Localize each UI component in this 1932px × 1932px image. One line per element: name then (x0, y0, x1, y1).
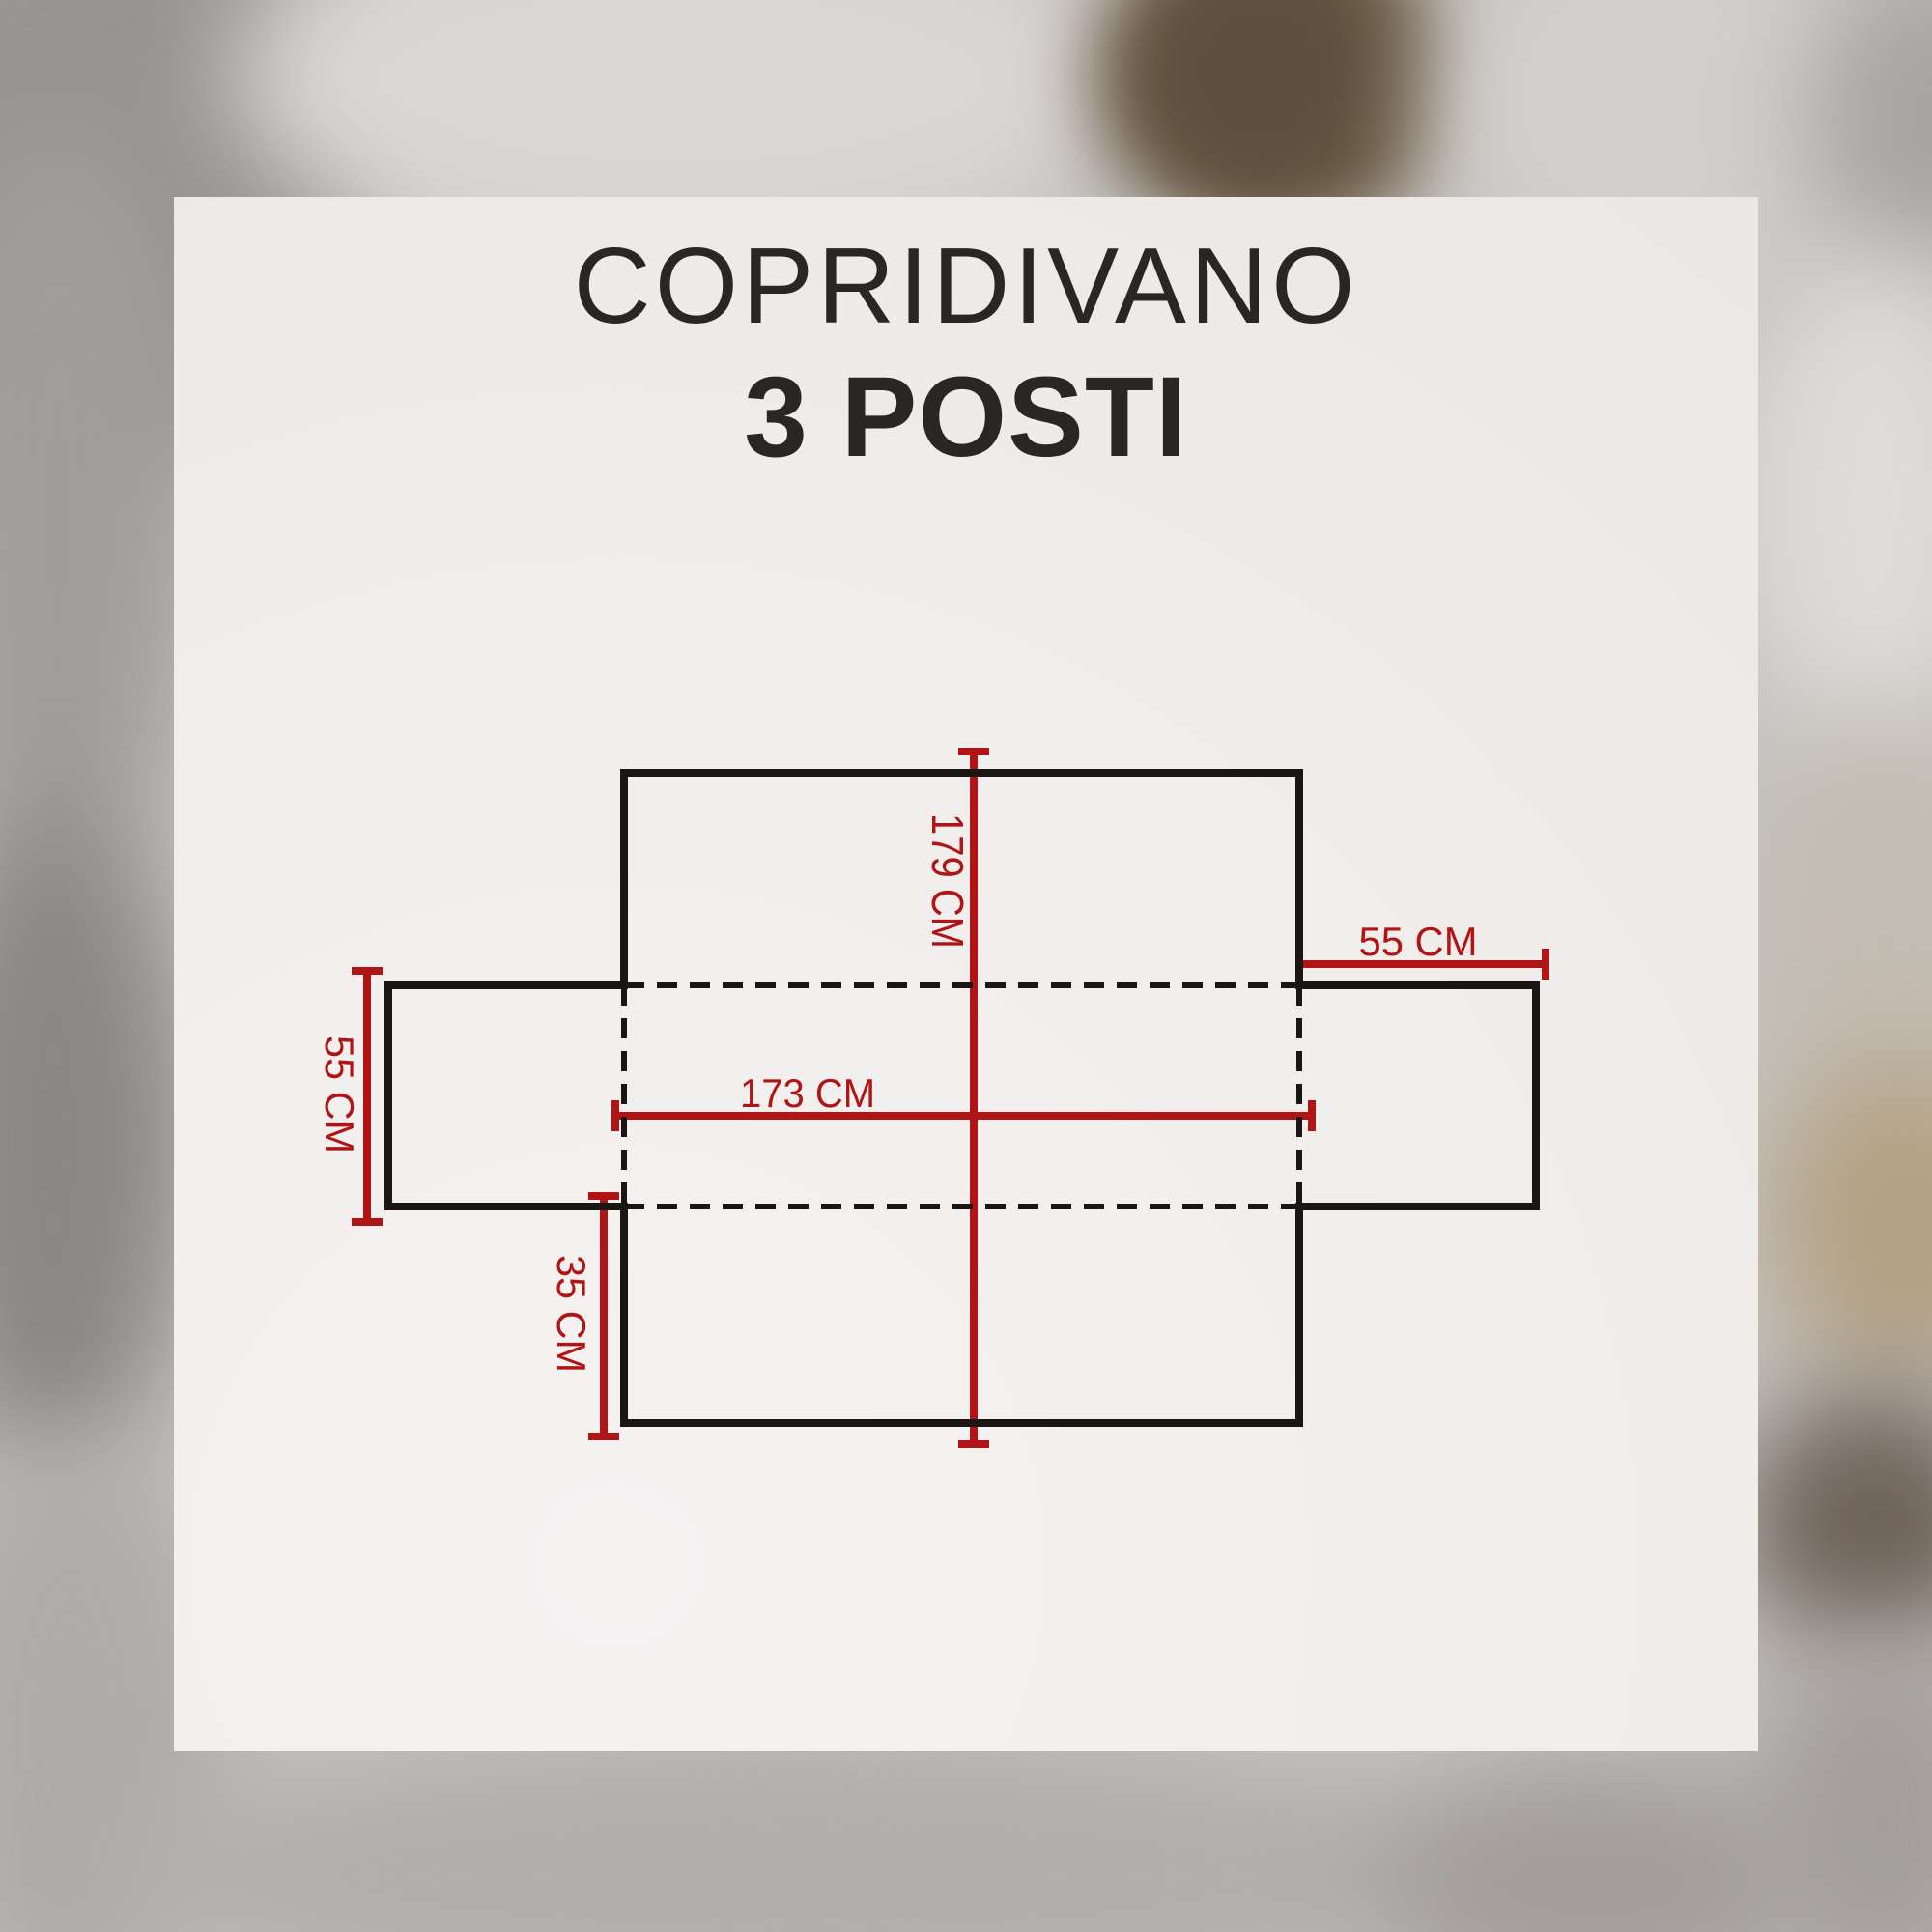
seat-fold-dashed-lines (624, 985, 1299, 1207)
product-infographic: COPRIDIVANO 3 POSTI 179 CM (0, 0, 1932, 1932)
left-armrest-label: 55 CM (317, 1036, 362, 1153)
left-armrest-panel-outline (388, 985, 628, 1207)
seat-width-label: 173 CM (740, 1070, 875, 1116)
right-armrest-label: 55 CM (1359, 919, 1478, 964)
front-flap-panel-outline (624, 1205, 1299, 1423)
dimension-labels: 179 CM 173 CM 55 CM 55 CM 35 CM (317, 813, 1478, 1373)
back-height-label: 179 CM (923, 813, 973, 949)
sofa-cover-measurement-diagram: 179 CM 173 CM 55 CM 55 CM 35 CM (0, 0, 1932, 1932)
dimension-line-seat-width (615, 1100, 1312, 1131)
right-armrest-panel-outline (1295, 985, 1536, 1207)
front-flap-label: 35 CM (549, 1255, 594, 1373)
